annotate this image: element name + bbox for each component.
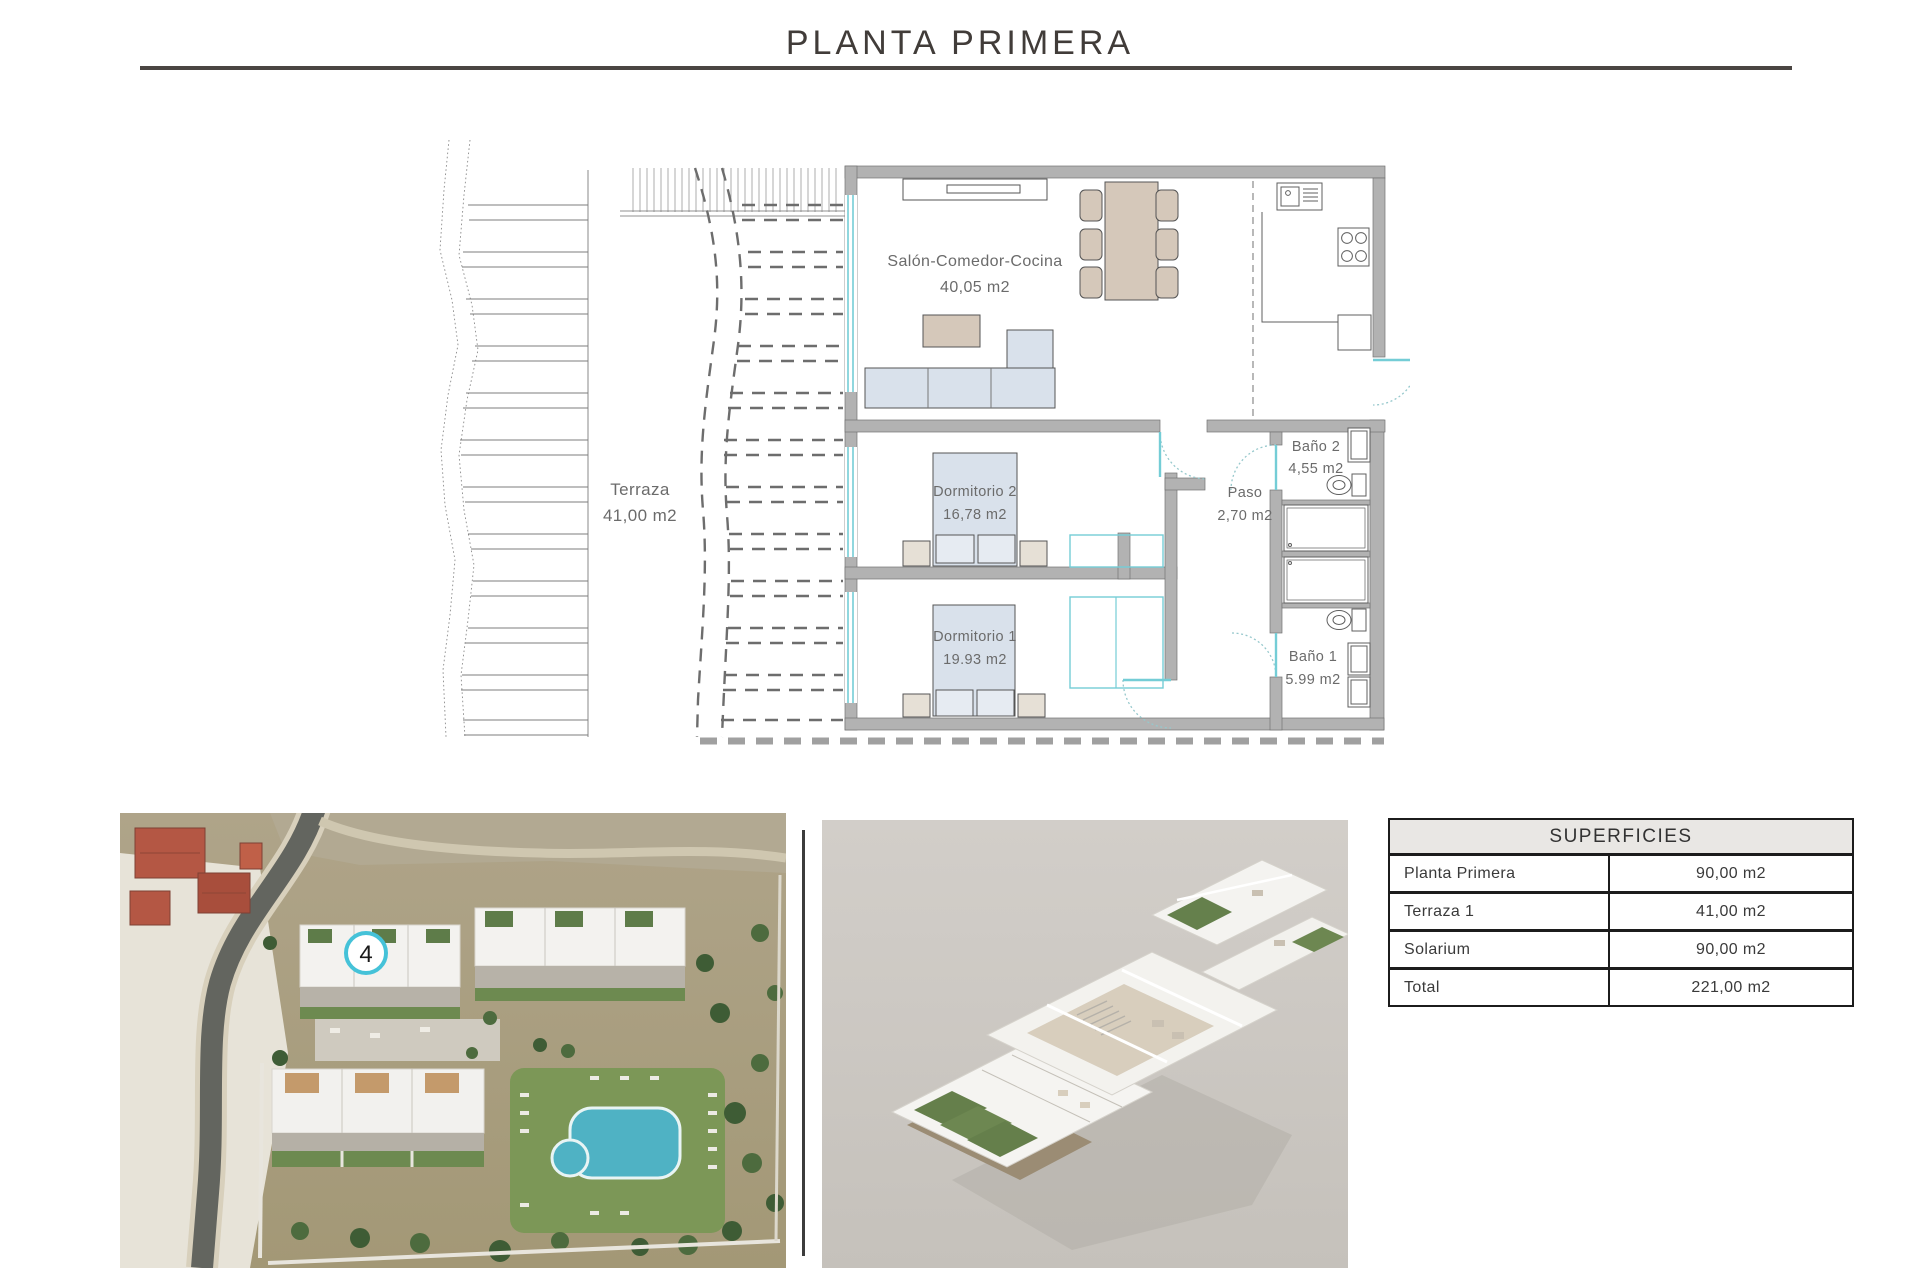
page-title: PLANTA PRIMERA <box>0 24 1920 63</box>
bano1-area: 5.99 m2 <box>1285 672 1340 688</box>
terraza-area: 41,00 m2 <box>603 506 677 525</box>
salon-label: Salón-Comedor-Cocina <box>887 253 1062 270</box>
bedroom1-furniture <box>903 597 1163 717</box>
lower-block <box>272 1069 484 1167</box>
row-label: Terraza 1 <box>1390 894 1610 929</box>
kitchen-fixtures <box>1262 183 1371 350</box>
terrace-boundary <box>695 168 843 737</box>
superficies-table: SUPERFICIES Planta Primera 90,00 m2 Terr… <box>1388 818 1854 1007</box>
pool-area <box>510 1068 725 1233</box>
row-label: Solarium <box>1390 932 1610 967</box>
isometric-render-drawing <box>822 820 1348 1268</box>
terraza-label: Terraza <box>610 480 670 499</box>
bano2-area: 4,55 m2 <box>1288 461 1343 477</box>
section-divider <box>802 830 805 1256</box>
bano1-label: Baño 1 <box>1289 649 1337 665</box>
row-value: 90,00 m2 <box>1610 856 1852 891</box>
terrain-contours <box>440 140 478 737</box>
unit-4-badge: 4 <box>346 933 386 973</box>
bano2-label: Baño 2 <box>1292 439 1340 455</box>
table-row: Total 221,00 m2 <box>1390 970 1852 1005</box>
floor-plan-drawing: Salón-Comedor-Cocina 40,05 m2 Terraza 41… <box>430 120 1410 770</box>
dormitorio1-area: 19.93 m2 <box>943 652 1007 668</box>
terrace-step-lines <box>460 170 588 737</box>
table-row: Solarium 90,00 m2 <box>1390 932 1852 970</box>
table-row: Planta Primera 90,00 m2 <box>1390 856 1852 894</box>
row-label: Planta Primera <box>1390 856 1610 891</box>
paso-label: Paso <box>1228 485 1263 501</box>
row-label: Total <box>1390 970 1610 1005</box>
table-header: SUPERFICIES <box>1390 820 1852 856</box>
floor-plan: Salón-Comedor-Cocina 40,05 m2 Terraza 41… <box>430 120 1410 770</box>
dormitorio2-label: Dormitorio 2 <box>933 484 1017 500</box>
paso-area: 2,70 m2 <box>1217 508 1272 524</box>
facade-windows <box>845 195 857 703</box>
row-value: 221,00 m2 <box>1610 970 1852 1005</box>
table-row: Terraza 1 41,00 m2 <box>1390 894 1852 932</box>
title-rule <box>140 66 1792 70</box>
unit-4-badge-number: 4 <box>359 941 372 968</box>
dormitorio2-area: 16,78 m2 <box>943 507 1007 523</box>
salon-area: 40,05 m2 <box>940 279 1010 296</box>
plan-sheet: PLANTA PRIMERA <box>0 0 1920 1280</box>
isometric-render <box>822 820 1348 1268</box>
row-value: 90,00 m2 <box>1610 932 1852 967</box>
aerial-photo-render: 4 <box>120 813 786 1268</box>
aerial-photo: 4 <box>120 813 786 1268</box>
dormitorio1-label: Dormitorio 1 <box>933 629 1017 645</box>
salon-furniture <box>865 179 1178 408</box>
pergola-hatch <box>620 168 845 216</box>
row-value: 41,00 m2 <box>1610 894 1852 929</box>
